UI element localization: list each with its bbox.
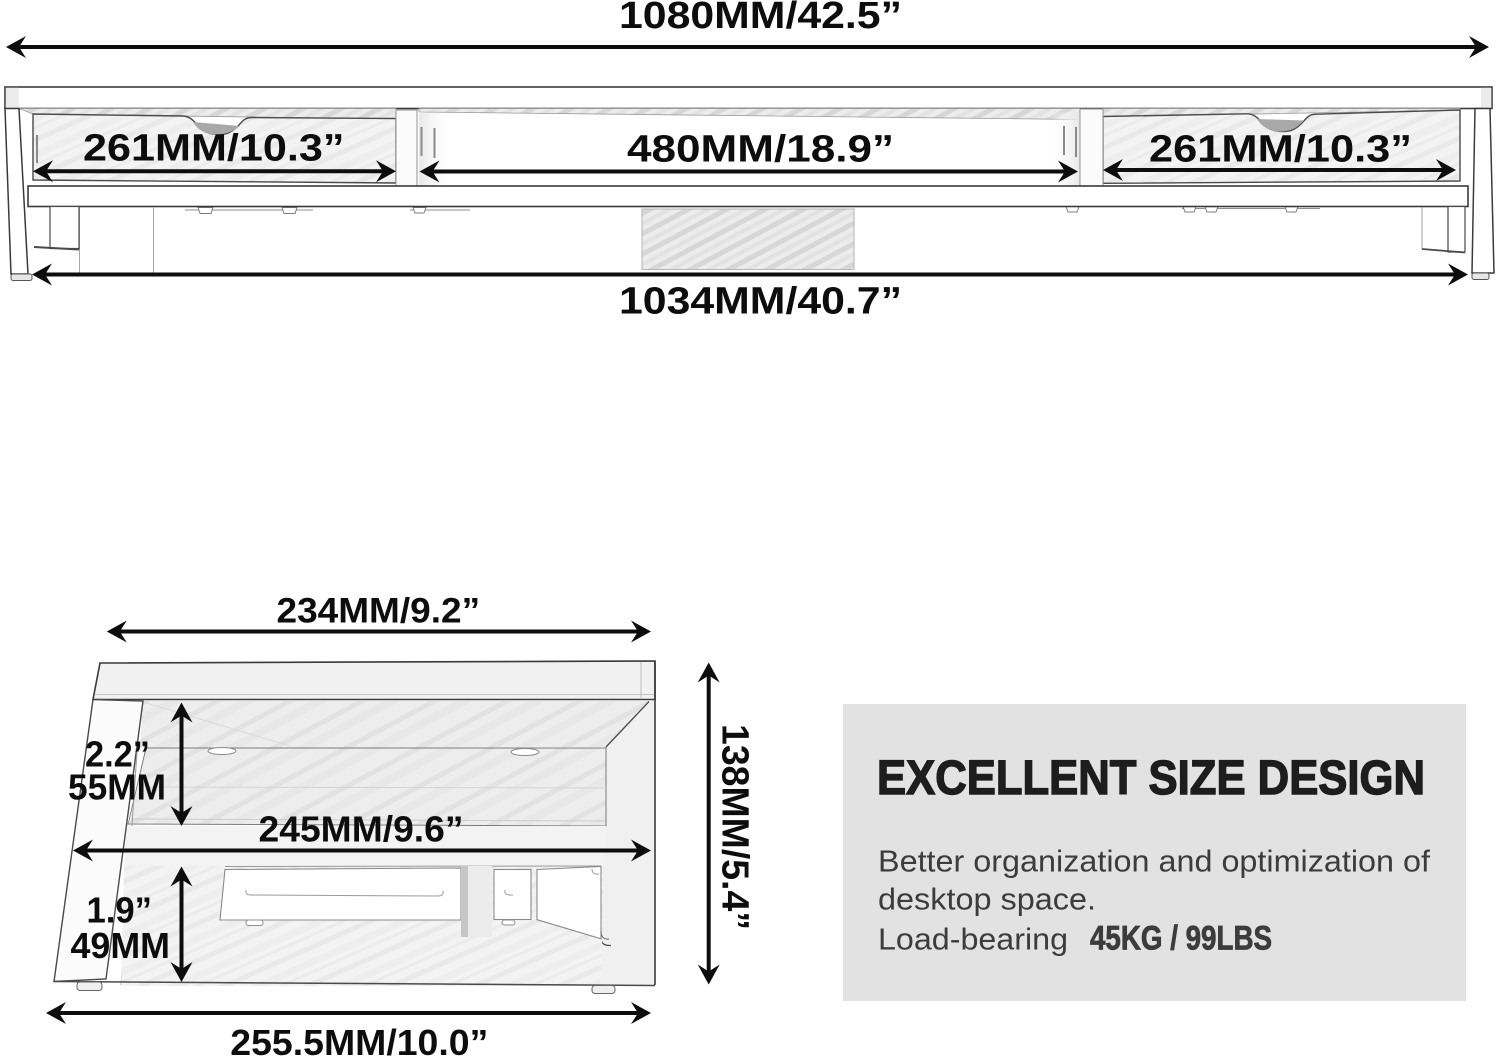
svg-text:desktop space.: desktop space. [878,882,1096,917]
svg-text:245MM/9.6”: 245MM/9.6” [259,808,464,849]
svg-text:234MM/9.2”: 234MM/9.2” [277,591,481,630]
svg-text:1034MM/40.7”: 1034MM/40.7” [619,281,902,323]
svg-text:1080MM/42.5”: 1080MM/42.5” [619,0,902,37]
svg-text:Load-bearing: Load-bearing [878,922,1068,957]
svg-text:EXCELLENT SIZE DESIGN: EXCELLENT SIZE DESIGN [877,752,1425,805]
svg-text:261MM/10.3”: 261MM/10.3” [83,128,345,170]
svg-text:255.5MM/10.0”: 255.5MM/10.0” [230,1022,488,1058]
svg-text:138MM/5.4”: 138MM/5.4” [714,724,756,930]
svg-text:45KG / 99LBS: 45KG / 99LBS [1090,920,1272,958]
svg-text:261MM/10.3”: 261MM/10.3” [1149,129,1412,171]
svg-text:55MM: 55MM [68,767,166,808]
svg-text:480MM/18.9”: 480MM/18.9” [627,129,894,171]
svg-text:Better organization and optimi: Better organization and optimization of [878,844,1430,879]
svg-text:49MM: 49MM [71,925,171,966]
